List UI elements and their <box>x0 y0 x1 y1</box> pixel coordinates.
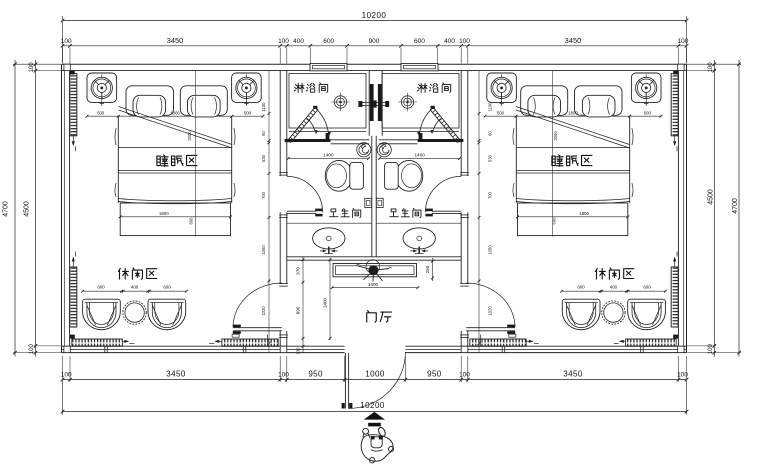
svg-text:400: 400 <box>610 285 618 290</box>
svg-text:3450: 3450 <box>565 36 582 45</box>
svg-text:370: 370 <box>296 267 301 275</box>
svg-text:600: 600 <box>323 38 334 45</box>
svg-text:1400: 1400 <box>323 153 334 158</box>
svg-text:900: 900 <box>369 38 380 45</box>
svg-text:600: 600 <box>97 285 105 290</box>
svg-text:1800: 1800 <box>159 211 169 216</box>
svg-text:1000: 1000 <box>365 370 385 379</box>
svg-text:400: 400 <box>293 38 304 45</box>
svg-text:600: 600 <box>414 38 425 45</box>
svg-text:700: 700 <box>488 191 493 199</box>
svg-text:600: 600 <box>188 217 193 225</box>
svg-text:600: 600 <box>163 285 171 290</box>
svg-text:60: 60 <box>488 131 493 136</box>
svg-text:100: 100 <box>29 344 35 355</box>
svg-text:890: 890 <box>296 306 301 314</box>
svg-text:1100: 1100 <box>261 102 266 112</box>
svg-text:100: 100 <box>61 38 72 45</box>
svg-text:100: 100 <box>61 372 72 379</box>
svg-text:530: 530 <box>261 154 266 162</box>
svg-text:4500: 4500 <box>24 201 31 217</box>
svg-text:100: 100 <box>459 372 470 379</box>
svg-text:1800: 1800 <box>170 110 180 115</box>
svg-text:250: 250 <box>425 265 430 273</box>
svg-text:100: 100 <box>677 372 688 379</box>
svg-text:950: 950 <box>308 370 323 379</box>
svg-text:3450: 3450 <box>167 36 184 45</box>
svg-text:3450: 3450 <box>166 370 186 379</box>
svg-text:400: 400 <box>131 285 139 290</box>
svg-text:1400: 1400 <box>414 153 425 158</box>
svg-text:60: 60 <box>261 131 266 136</box>
svg-text:4700: 4700 <box>3 201 10 217</box>
svg-text:10200: 10200 <box>360 401 385 410</box>
svg-text:4500: 4500 <box>708 189 715 205</box>
svg-text:500: 500 <box>97 110 105 115</box>
svg-text:600: 600 <box>577 285 585 290</box>
svg-text:2000: 2000 <box>187 131 192 141</box>
svg-text:530: 530 <box>488 154 493 162</box>
svg-text:3450: 3450 <box>563 370 583 379</box>
svg-text:500: 500 <box>644 110 652 115</box>
svg-text:130: 130 <box>296 347 301 355</box>
svg-text:1400: 1400 <box>323 297 328 308</box>
svg-text:10200: 10200 <box>362 11 387 20</box>
svg-text:500: 500 <box>244 110 252 115</box>
svg-text:100: 100 <box>278 372 289 379</box>
svg-text:1100: 1100 <box>488 102 493 112</box>
svg-text:950: 950 <box>427 370 442 379</box>
svg-text:100: 100 <box>678 38 689 45</box>
svg-text:4700: 4700 <box>732 198 739 214</box>
svg-text:600: 600 <box>643 285 651 290</box>
svg-text:1800: 1800 <box>579 211 589 216</box>
svg-text:2000: 2000 <box>553 131 558 141</box>
svg-text:100: 100 <box>459 38 470 45</box>
svg-text:400: 400 <box>444 38 455 45</box>
svg-text:700: 700 <box>261 191 266 199</box>
svg-text:500: 500 <box>497 110 505 115</box>
svg-text:1020: 1020 <box>261 306 266 316</box>
svg-text:100: 100 <box>278 38 289 45</box>
svg-text:1050: 1050 <box>261 245 266 255</box>
svg-text:1020: 1020 <box>488 306 493 316</box>
svg-text:1400: 1400 <box>368 282 379 287</box>
svg-text:1050: 1050 <box>488 245 493 255</box>
